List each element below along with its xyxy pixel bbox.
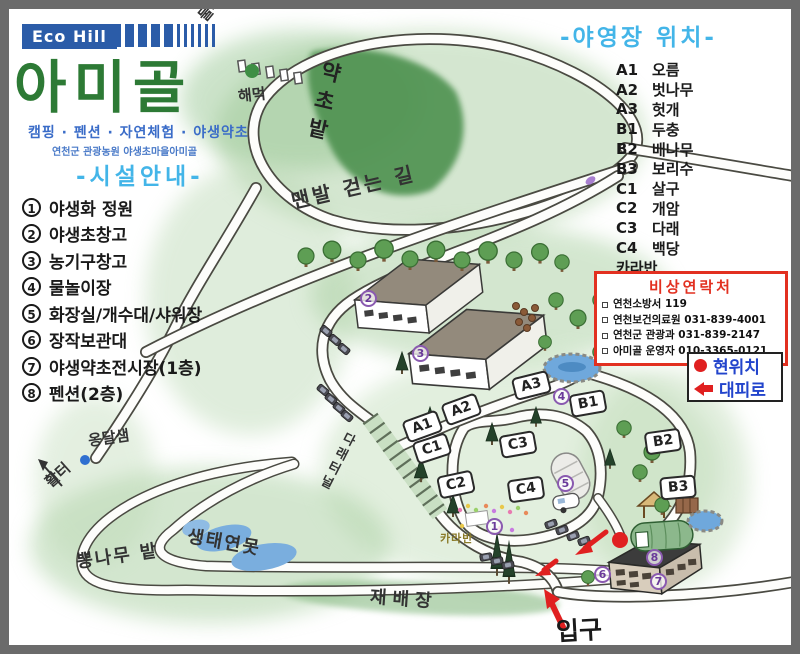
facility-item: 3농기구창고 — [22, 247, 202, 274]
emergency-contact: 연천군 관광과 031-839-2147 — [602, 328, 780, 344]
site-name: 배나무 — [652, 139, 693, 160]
site-code: B2 — [616, 140, 652, 158]
site-item: C4백당 — [616, 238, 693, 258]
sites-heading: -야영장 위치- — [560, 18, 717, 52]
site-code: C1 — [616, 180, 652, 198]
page-title: 아미골 — [14, 42, 192, 124]
site-item: A1오름 — [616, 60, 693, 80]
facilities-heading: -시설안내- — [76, 157, 204, 191]
site-item: C1살구 — [616, 179, 693, 199]
site-item: C3다래 — [616, 218, 693, 238]
hammock-label: 해먹 — [237, 83, 267, 107]
facilities-list: 1야생화 정원 2야생초창고 3농기구창고 4물놀이장 5화장실/개수대/샤워장… — [22, 194, 202, 406]
map-legend: 현위치 대피로 — [687, 352, 783, 402]
facility-number: 4 — [22, 277, 41, 296]
facility-item: 5화장실/개수대/샤워장 — [22, 300, 202, 327]
facility-label: 장작보관대 — [49, 327, 127, 352]
site-code: A2 — [616, 81, 652, 99]
facility-item: 8펜션(2층) — [22, 380, 202, 407]
map-marker-B3: B3 — [659, 474, 697, 500]
site-name: 보리수 — [652, 158, 693, 179]
brand-subtitle: 캠핑 · 펜션 · 자연체험 · 야생약초 — [28, 122, 249, 142]
map-number-3: 3 — [412, 345, 429, 362]
checkbox-icon — [602, 333, 608, 339]
facility-number: 6 — [22, 330, 41, 349]
eco-pond-label: 생태연못 — [185, 522, 263, 560]
facility-label: 야생초창고 — [49, 221, 127, 246]
legend-label: 현위치 — [713, 353, 760, 378]
site-code: C3 — [616, 219, 652, 237]
map-marker-A3: A3 — [511, 370, 552, 401]
evacuation-arrow-icon — [694, 382, 713, 396]
contact-text: 연천보건의료원 031-839-4001 — [613, 313, 766, 329]
map-marker-C2: C2 — [436, 470, 476, 500]
site-code: B1 — [616, 120, 652, 138]
map-number-1: 1 — [486, 518, 503, 535]
emergency-contact: 연천보건의료원 031-839-4001 — [602, 313, 780, 329]
site-name: 오름 — [652, 59, 680, 80]
current-location-icon — [694, 359, 707, 372]
site-item: C2개암 — [616, 199, 693, 219]
facility-item: 7야생약초전시장(1층) — [22, 353, 202, 380]
checkbox-icon — [602, 302, 608, 308]
map-number-5: 5 — [557, 475, 574, 492]
facility-number: 1 — [22, 198, 41, 217]
site-name: 벗나무 — [652, 79, 693, 100]
spring-label: 옹달샘 — [87, 424, 131, 451]
map-number-6: 6 — [594, 566, 611, 583]
campground-map-page: { "header": { "logo": "Eco Hill", "title… — [0, 0, 800, 654]
site-code: C2 — [616, 199, 652, 217]
facility-label: 물놀이장 — [49, 274, 112, 299]
map-number-4: 4 — [553, 388, 570, 405]
facility-number: 5 — [22, 304, 41, 323]
facility-label: 농기구창고 — [49, 248, 127, 273]
emergency-title: 비상연락처 — [602, 276, 780, 297]
site-code: A1 — [616, 61, 652, 79]
map-marker-C3: C3 — [498, 430, 537, 459]
facility-item: 6장작보관대 — [22, 327, 202, 354]
map-marker-B1: B1 — [568, 389, 608, 418]
legend-label: 대피로 — [719, 376, 766, 401]
map-number-7: 7 — [650, 573, 667, 590]
herb-field-label: 약초밭 — [298, 58, 347, 150]
site-item: A3헛개 — [616, 100, 693, 120]
site-name: 백당 — [652, 238, 680, 259]
site-name: 살구 — [652, 178, 680, 199]
facility-number: 7 — [22, 357, 41, 376]
darae-tunnel-label: 다래터널 — [313, 428, 359, 494]
facility-number: 3 — [22, 251, 41, 270]
facility-label: 펜션(2층) — [49, 380, 123, 405]
facility-label: 화장실/개수대/샤워장 — [49, 301, 202, 326]
site-name: 개암 — [652, 198, 680, 219]
archery-label: 활터 — [40, 458, 75, 492]
site-item: A2벗나무 — [616, 80, 693, 100]
checkbox-icon — [602, 348, 608, 354]
site-name: 다래 — [652, 218, 680, 239]
site-name: 두충 — [652, 119, 680, 140]
map-marker-C4: C4 — [507, 476, 546, 504]
facility-number: 2 — [22, 224, 41, 243]
map-marker-B2: B2 — [644, 428, 683, 456]
trail-label: 둘레길 — [193, 0, 236, 25]
emergency-contact: 연천소방서 119 — [602, 297, 780, 313]
map-number-8: 8 — [646, 549, 663, 566]
site-code: A3 — [616, 100, 652, 118]
site-item: B2배나무 — [616, 139, 693, 159]
map-number-2: 2 — [360, 290, 377, 307]
facility-label: 야생화 정원 — [49, 195, 133, 220]
mulberry-field-label: 뽕나무 밭 — [75, 536, 160, 573]
facility-number: 8 — [22, 383, 41, 402]
cultivation-label: 재배장 — [369, 583, 438, 614]
site-name: 헛개 — [652, 99, 680, 120]
legend-current-location: 현위치 — [689, 354, 781, 377]
sites-list: A1오름 A2벗나무 A3헛개 B1두충 B2배나무 B3보리수 C1살구 C2… — [616, 60, 693, 278]
facility-item: 1야생화 정원 — [22, 194, 202, 221]
facility-label: 야생약초전시장(1층) — [49, 354, 202, 379]
entrance-label: 입구 — [555, 610, 603, 648]
contact-text: 연천군 관광과 031-839-2147 — [613, 328, 760, 344]
site-code: B3 — [616, 160, 652, 178]
site-code: C4 — [616, 239, 652, 257]
site-item: B1두충 — [616, 119, 693, 139]
caravan-label: 카라반 — [440, 530, 473, 546]
checkbox-icon — [602, 317, 608, 323]
legend-evacuation-route: 대피로 — [689, 377, 781, 400]
facility-item: 2야생초창고 — [22, 221, 202, 248]
barefoot-path-label: 맨발 걷는 길 — [288, 157, 418, 214]
site-item: B3보리수 — [616, 159, 693, 179]
brand-subtitle2: 연천군 관광농원 야생초마을아미골 — [52, 143, 197, 158]
facility-item: 4물놀이장 — [22, 274, 202, 301]
map-marker-A2: A2 — [440, 392, 482, 426]
contact-text: 연천소방서 119 — [613, 297, 687, 313]
